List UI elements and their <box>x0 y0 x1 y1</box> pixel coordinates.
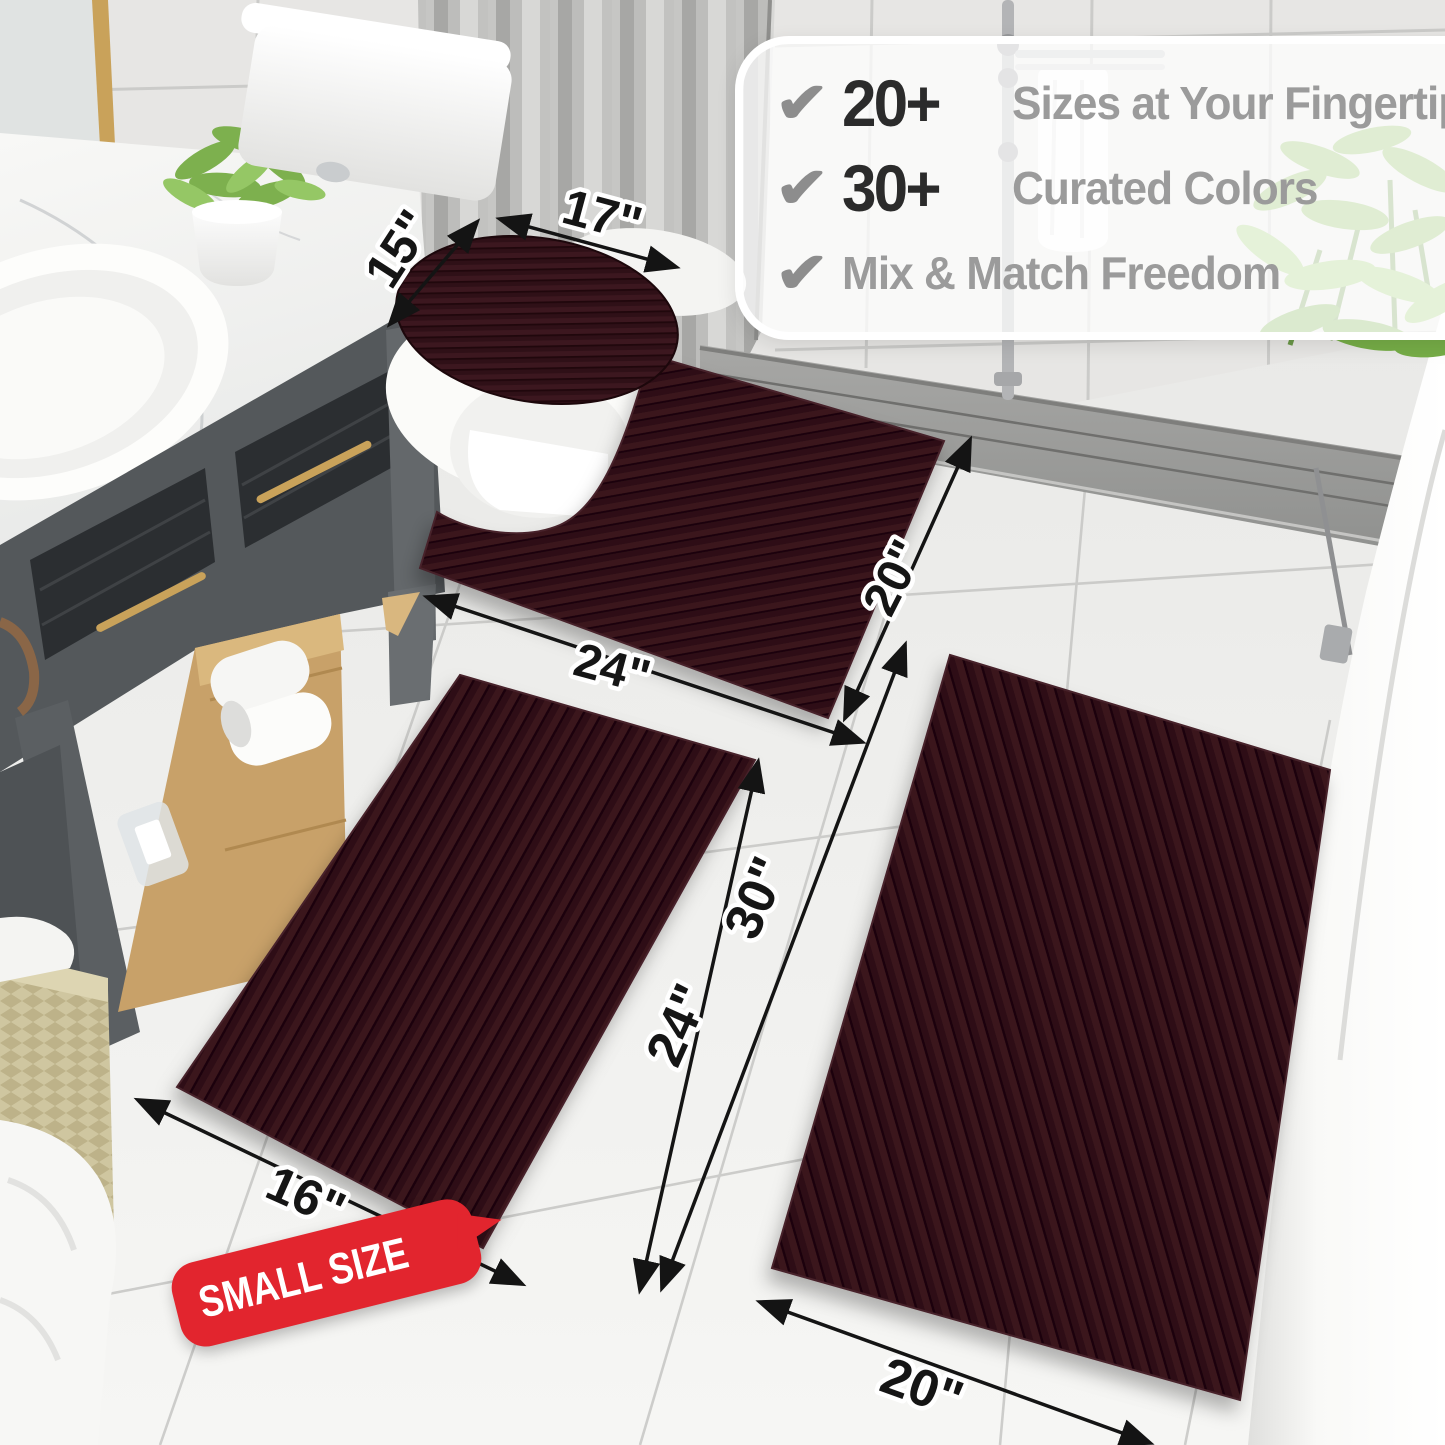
feature-callout: ✔ 20+ Sizes at Your Fingertips ✔ 30+ Cur… <box>735 36 1445 340</box>
feature-value: 30+ <box>842 155 983 221</box>
feature-label: Curated Colors <box>1012 165 1318 211</box>
product-image: 17" 15" 24" 20" 30" 24" 16" 20" ✔ 20+ Si… <box>0 0 1445 1445</box>
feature-row: ✔ 20+ Sizes at Your Fingertips <box>775 60 1445 145</box>
feature-value: 20+ <box>842 70 983 136</box>
check-icon: ✔ <box>775 160 829 216</box>
check-icon: ✔ <box>775 75 829 131</box>
feature-row: ✔ Mix & Match Freedom <box>775 231 1445 316</box>
badge-tail <box>457 1214 501 1250</box>
feature-label: Sizes at Your Fingertips <box>1012 80 1445 126</box>
feature-label: Mix & Match Freedom <box>842 250 1280 296</box>
feature-row: ✔ 30+ Curated Colors <box>775 145 1445 230</box>
check-icon: ✔ <box>775 245 829 301</box>
